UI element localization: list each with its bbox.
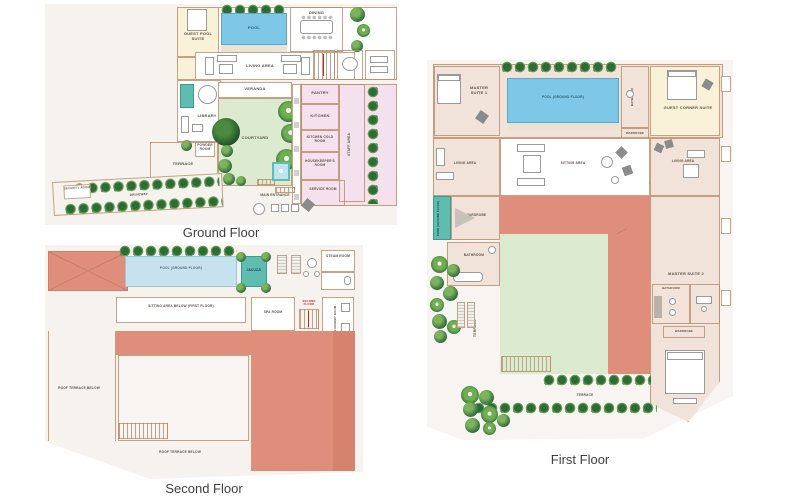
sitting-area-label: SITTING AREA	[553, 162, 593, 166]
main-entrance-label: MAIN ENTRANCE	[257, 194, 293, 198]
sofa	[436, 148, 445, 166]
library-label: LIBRARY	[193, 114, 221, 119]
bathroom-left-label: BATHROOM	[457, 254, 491, 258]
sink-icon	[669, 298, 676, 305]
tree-icon	[431, 256, 448, 273]
sink-icon	[669, 309, 676, 316]
pool	[507, 78, 619, 123]
corridor-doors	[294, 88, 299, 200]
sitting-area-below	[116, 297, 246, 323]
roof-band	[500, 196, 650, 234]
garden-tree-column	[367, 86, 379, 204]
dining-chairs-bottom	[301, 35, 333, 40]
table	[192, 124, 203, 132]
terrace-side-label: TERRACE	[474, 310, 482, 346]
sofa	[281, 55, 301, 62]
sun-lounger	[467, 302, 475, 328]
dining-table	[300, 20, 333, 34]
pool-label: POOL (GROUND FLOOR)	[532, 96, 594, 100]
bench	[281, 204, 289, 212]
hip-roof	[48, 251, 128, 291]
sofa	[217, 55, 237, 62]
sofa	[301, 57, 310, 75]
tree-icon	[432, 314, 447, 329]
toilet-icon	[344, 276, 351, 285]
driveway-tree-row-bottom	[64, 195, 222, 215]
tree-icon	[350, 7, 365, 22]
left-terrace-boundary	[48, 331, 116, 441]
tree-icon	[236, 176, 246, 186]
wardrobe-top-label: WARDROBE	[621, 132, 649, 135]
pillow	[668, 71, 696, 77]
first-floor-plan: MASTER SUITE 1 POOL (GROUND FLOOR) BATHR…	[425, 58, 735, 450]
stair-arrow	[323, 54, 324, 76]
staff-area-label: STAFF AREA	[348, 114, 356, 174]
guest-corner-suite-label: GUEST CORNER SUITE	[663, 106, 713, 111]
tree-icon	[218, 159, 232, 173]
window-bay	[721, 146, 731, 162]
tree-icon	[221, 145, 233, 157]
roof-terrace-bottom-label: ROOF TERRACE BELOW	[145, 451, 215, 455]
chair	[314, 271, 320, 277]
terrace-label: TERRACE	[163, 162, 203, 167]
pool-below-label: POOL (GROUND FLOOR)	[151, 267, 211, 271]
sofa	[205, 57, 214, 75]
spa-room-label: SPA ROOM	[257, 311, 289, 315]
sofa	[683, 164, 699, 178]
master-suite-2-label: MASTER SUITE 2	[659, 272, 713, 277]
wardrobe-right-label: WARDROBE	[663, 330, 705, 333]
living-left-room	[433, 138, 500, 196]
plunge-pool-jet	[279, 169, 283, 173]
tree-icon	[357, 24, 370, 37]
tree-icon	[223, 173, 235, 185]
sitting-area-below-label: SITTING AREA BELOW (FIRST FLOOR)	[141, 305, 221, 309]
bench	[291, 204, 299, 212]
terrace-bottom-label: TERRACE	[565, 394, 605, 398]
kitchen-cold-room-label: KITCHEN COLD ROOM	[303, 136, 337, 144]
round-table	[307, 258, 317, 268]
coffee-table	[283, 64, 297, 74]
bench	[271, 204, 279, 212]
tree-icon	[479, 390, 494, 405]
water-feature	[180, 84, 194, 108]
tree-icon	[261, 283, 271, 293]
round-table	[253, 203, 265, 215]
tree-icon	[481, 406, 498, 423]
pool-deck	[221, 45, 287, 52]
stairs	[299, 309, 319, 329]
tree-icon	[465, 418, 480, 433]
window-bay	[721, 76, 731, 92]
dining-chairs-top	[301, 15, 333, 20]
pool-tree-row	[501, 61, 619, 73]
shower	[654, 296, 662, 318]
ground-floor-caption: Ground Floor	[45, 225, 397, 241]
tree-icon	[443, 286, 458, 301]
round-table	[601, 156, 613, 168]
tree-icon	[463, 402, 478, 417]
pool-below	[125, 256, 237, 287]
desk	[696, 296, 712, 304]
pool-label: POOL	[221, 26, 287, 31]
sofa	[687, 150, 705, 158]
sun-lounger	[291, 255, 301, 274]
coffee-table	[219, 64, 233, 74]
tree-icon	[434, 330, 447, 343]
roof-dark-strip	[333, 331, 355, 471]
window-bay	[721, 218, 731, 234]
void-stairs	[118, 423, 168, 439]
tree-icon	[430, 276, 444, 290]
tree-icon	[430, 298, 444, 312]
pond-label: POND (GROUND FLOOR)	[438, 200, 446, 236]
sofa	[436, 172, 454, 180]
service-room-label: SERVICE ROOM	[303, 188, 343, 192]
housekeepers-room-label: HOUSEKEEPER'S ROOM	[303, 160, 337, 168]
first-floor-caption: First Floor	[425, 452, 735, 468]
pillow	[667, 352, 703, 360]
seating-room	[365, 50, 395, 80]
kitchen-label: KITCHEN	[301, 114, 339, 119]
lawn-stairs	[501, 356, 551, 372]
tree-icon	[483, 422, 496, 435]
stairs	[313, 50, 335, 80]
chair	[611, 176, 619, 184]
pillow	[438, 75, 460, 81]
guest-pool-suite-label: GUEST POOL SUITE	[178, 32, 218, 42]
tree-icon	[261, 252, 271, 262]
sofa	[517, 178, 545, 186]
sink-icon	[626, 90, 634, 98]
toilet-icon	[488, 246, 496, 254]
window-bay	[721, 290, 731, 306]
sofa	[370, 66, 388, 73]
ground-floor-plan: GUEST POOL SUITE POOL DINING LIVING AREA…	[45, 4, 397, 225]
veranda-label: VERANDA	[218, 87, 292, 92]
chair	[303, 271, 309, 277]
tree-icon	[236, 252, 246, 262]
second-floor-plan: POOL (GROUND FLOOR) JACUZZI STEAM ROOM S…	[45, 245, 363, 479]
chair	[701, 306, 707, 312]
bed-icon	[187, 9, 207, 31]
stair-arrow	[308, 311, 309, 327]
coffee-table	[523, 155, 541, 173]
bathroom-right-label: BATHROOM	[654, 287, 688, 290]
pool-tree-row	[119, 245, 237, 256]
driveway: DRIVEWAY SECURITY ROOM	[52, 173, 224, 216]
tree-icon	[497, 414, 510, 427]
roof-band	[116, 331, 355, 355]
master-suite-1-label: MASTER SUITE 1	[463, 86, 495, 96]
roof-right-column	[608, 234, 650, 374]
sun-lounger	[277, 255, 287, 274]
oval-table	[342, 57, 358, 71]
living-area-left-label: LIVING AREA	[443, 162, 487, 166]
sofa	[517, 144, 545, 152]
round-table	[198, 85, 217, 104]
tree-icon	[447, 264, 460, 277]
jacuzzi-label: JACUZZI	[241, 269, 267, 273]
second-floor-caption: Second Floor	[45, 481, 363, 497]
mid-tree-row	[543, 374, 651, 388]
courtyard-lawn	[500, 234, 608, 374]
tree-icon	[236, 283, 246, 293]
steam-room-label: STEAM ROOM	[325, 255, 351, 259]
sun-lounger	[457, 302, 465, 328]
second-floor-stair-label: SECOND FLOOR	[297, 300, 321, 307]
sofa	[370, 56, 388, 63]
pool-deck	[507, 123, 619, 130]
vanity-room	[690, 284, 720, 324]
pantry-label: PANTRY	[301, 91, 339, 96]
bench	[673, 398, 697, 404]
sofa	[181, 116, 189, 133]
appliance	[341, 303, 350, 312]
living-area-label: LIVING AREA	[240, 64, 280, 69]
